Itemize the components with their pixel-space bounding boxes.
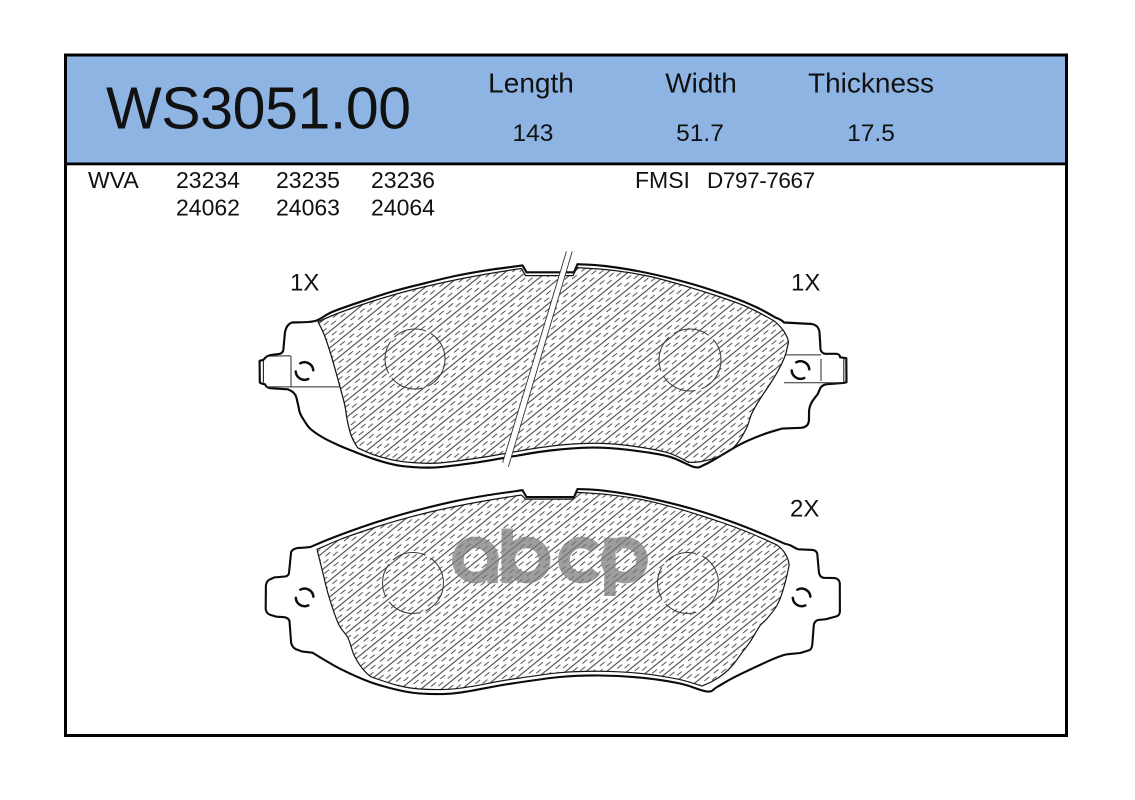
svg-text:23236: 23236 [371, 167, 435, 193]
svg-text:51.7: 51.7 [676, 120, 724, 147]
svg-text:17.5: 17.5 [847, 120, 895, 147]
svg-text:Length: Length [488, 68, 574, 99]
svg-text:143: 143 [513, 120, 554, 147]
svg-text:23235: 23235 [276, 167, 340, 193]
svg-text:WS3051.00: WS3051.00 [106, 76, 411, 142]
svg-text:24063: 24063 [276, 195, 340, 221]
svg-text:24062: 24062 [176, 195, 240, 221]
svg-text:D797-7667: D797-7667 [707, 168, 815, 193]
svg-text:1X: 1X [290, 270, 319, 297]
svg-text:FMSI: FMSI [635, 167, 690, 193]
svg-text:23234: 23234 [176, 167, 240, 193]
svg-text:Width: Width [665, 68, 737, 99]
svg-text:1X: 1X [791, 270, 820, 297]
svg-text:Thickness: Thickness [808, 68, 934, 99]
svg-text:WVA: WVA [88, 167, 139, 193]
svg-text:24064: 24064 [371, 195, 435, 221]
svg-text:2X: 2X [790, 496, 819, 523]
